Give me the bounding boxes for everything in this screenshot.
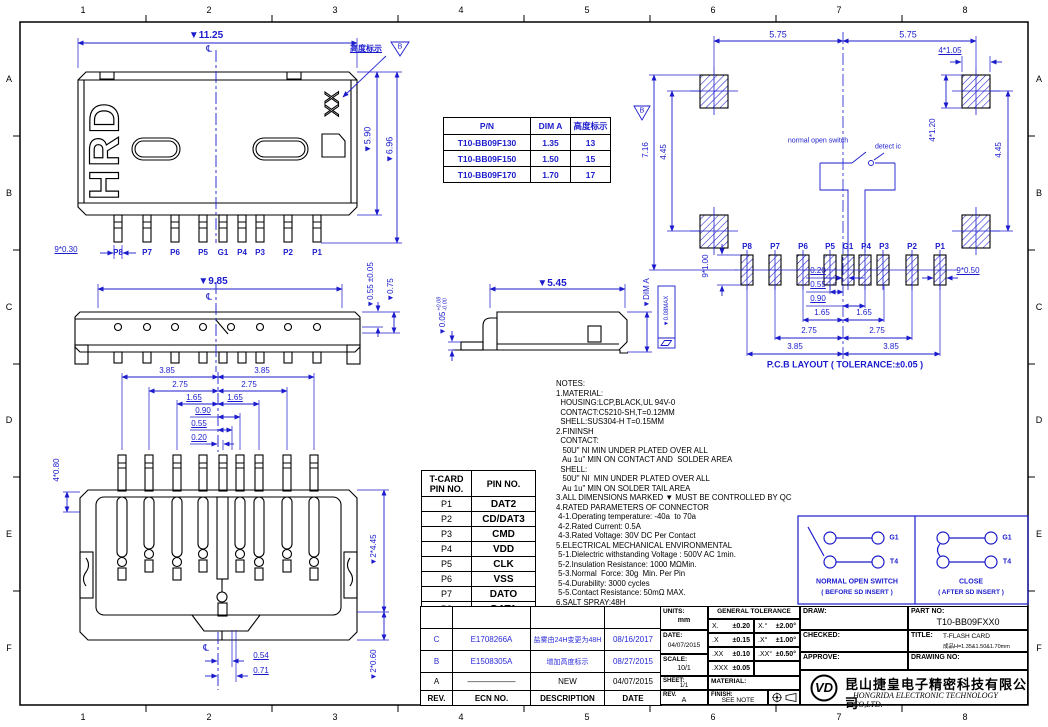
units-cell: UNITS: mm — [660, 606, 708, 630]
tol-linear-row: X.±0.20 — [708, 619, 754, 633]
height-callout-label: 高度标示 — [350, 45, 382, 53]
tol-linear-row: .XX±0.10 — [708, 647, 754, 661]
notes-block: NOTES:1.MATERIAL: HOUSING:LCP,BLACK,UL 9… — [556, 379, 791, 607]
dim-stack: 2.75 — [801, 327, 817, 335]
note-line: 4-3.Rated Voltage: 30V DC Per Contact — [556, 531, 791, 541]
pn-cell: T10-BB09F130 — [444, 135, 531, 151]
pin-label: P3 — [255, 249, 265, 257]
zone-label: 8 — [902, 0, 1028, 20]
pad-label: P4 — [861, 243, 871, 251]
height-stamp-mark: XX — [323, 91, 344, 117]
terminal-label: T4 — [890, 559, 898, 566]
centerline-symbol: ℄ — [203, 644, 209, 653]
tol-linear-row: .XXX±0.05 — [708, 661, 754, 676]
pin-number-cell: P6 — [422, 572, 472, 587]
pin-number-cell: P1 — [422, 497, 472, 512]
finish-value: SEE NOTE — [709, 697, 767, 704]
title-cell: TITLE: T-FLASH CARD 成品H=1.35&1.50&1.70mm — [908, 630, 1028, 652]
dim-contact-height: ▼0.55 ±0.05 — [367, 262, 375, 308]
detect-switch-schematic — [820, 152, 895, 252]
tol-angular-row: .XX°±0.50° — [754, 647, 800, 661]
dim-stack: 0.90 — [195, 407, 211, 415]
pad-label: P5 — [825, 243, 835, 251]
rev-date: 08/16/2017 — [605, 629, 662, 651]
part-no-cell: PART NO: T10-BB09FXX0 — [908, 606, 1028, 630]
material-cell: MATERIAL: — [708, 676, 800, 690]
terminal-label: G1 — [889, 535, 898, 542]
projection-symbols-cell — [768, 690, 800, 705]
tol-key: .XX° — [758, 651, 772, 658]
dim-stack: 1.65 — [856, 309, 872, 317]
pcb-caption: P.C.B LAYOUT ( TOLERANCE:±0.05 ) — [767, 361, 923, 370]
switch-label: normal open switch — [788, 138, 848, 145]
dim-top-width: ▼9.85 — [198, 277, 227, 287]
zone-label: 7 — [776, 0, 902, 20]
note-line: 4-1.Operating temperature: -40a to 70a — [556, 512, 791, 522]
finish-cell: FINISH: SEE NOTE — [708, 690, 768, 705]
dim-stack: 2.75 — [172, 381, 188, 389]
note-line: 5-3.Normal Force: 30g Min. Per Pin — [556, 569, 791, 579]
top-view-contacts — [115, 320, 321, 334]
dim-tail: ▼2*0.60 — [370, 649, 378, 680]
dim-stack: 0.20 — [810, 267, 826, 275]
side-view-outline — [452, 312, 628, 353]
scale-cell: SCALE: 10/1 — [660, 654, 708, 676]
material-label: MATERIAL: — [711, 678, 746, 685]
dim-front-width: ▼11.25 — [189, 31, 223, 41]
pin-number-cell: P2 — [422, 512, 472, 527]
tolerance-header: GENERAL TOLERANCE — [708, 606, 800, 619]
zone-label: B — [0, 136, 18, 250]
zone-label: 4 — [398, 0, 524, 20]
zone-rows-left: ABCDEF — [0, 22, 18, 705]
pin-label: P2 — [283, 249, 293, 257]
note-line: HOUSING:LCP,BLACK,UL 94V-0 — [556, 398, 791, 408]
company-logo-text: VD — [815, 680, 834, 695]
dim-stack: 3.85 — [254, 367, 270, 375]
pn-cell: T10-BB09F150 — [444, 151, 531, 167]
pin-table-header-1: T-CARDPIN NO. — [422, 471, 472, 497]
title-label: TITLE: — [911, 632, 933, 639]
rev-ecn: E1708266A — [453, 629, 531, 651]
pin-number-cell: P5 — [422, 557, 472, 572]
pin-number-cell: P7 — [422, 587, 472, 602]
dim-pcb-right: 5.75 — [899, 31, 917, 40]
pin-label: P6 — [170, 249, 180, 257]
rev-header: DATE — [605, 691, 662, 706]
part-no-value: T10-BB09FXX0 — [909, 617, 1027, 627]
dim-stack: 3.85 — [787, 343, 803, 351]
dim-body-height: ▼2*4.45 — [370, 534, 378, 565]
switch-close-subtitle: ( AFTER SD INSERT ) — [938, 590, 1004, 597]
pad-label: P7 — [770, 243, 780, 251]
rev-desc: NEW — [531, 673, 605, 691]
bottom-view-dimensions — [63, 372, 389, 690]
dim-side-width: ▼5.45 — [537, 279, 566, 289]
zone-label: B — [1030, 136, 1048, 250]
pin-label: P7 — [142, 249, 152, 257]
company-cell: VD 昆山捷皇电子精密科技有限公司 HONGRIDA ELECTRONIC TE… — [800, 670, 1028, 705]
drawing-no-cell: DRAWING NO: — [908, 652, 1028, 670]
note-line: NOTES: — [556, 379, 791, 389]
pin-table-header-line2: PIN NO. — [422, 484, 471, 494]
dim-stack: 0.20 — [191, 434, 207, 442]
drawing-no-label: DRAWING NO: — [911, 654, 960, 661]
switch-open-title: NORMAL OPEN SWITCH — [816, 579, 898, 586]
rev-desc: 盐雾由24H变更为48H — [531, 629, 605, 651]
pad-label: P8 — [742, 243, 752, 251]
pn-cell: T10-BB09F170 — [444, 167, 531, 183]
part-no-label: PART NO: — [911, 608, 944, 615]
zone-label: 6 — [650, 0, 776, 20]
note-line: 50U" NI MIN UNDER PLATED OVER ALL — [556, 474, 791, 484]
note-line: Au 1u" MIN ON SOLDER TAIL AREA — [556, 484, 791, 494]
pin-label: G1 — [218, 249, 229, 257]
date-cell: DATE: 04/07/2015 — [660, 630, 708, 654]
zone-label: E — [1030, 477, 1048, 591]
dim-side-left: 4.45 — [660, 144, 668, 160]
dim-stack: 3.85 — [883, 343, 899, 351]
pin-signal-cell: CLK — [472, 557, 536, 572]
pin-signal-cell: DAT2 — [472, 497, 536, 512]
note-line: CONTACT: — [556, 436, 791, 446]
shell-brand-mark: HRD — [81, 100, 128, 200]
pin-label: P8 — [113, 249, 123, 257]
note-line: 4-2.Rated Current: 0.5A — [556, 522, 791, 532]
zone-label: A — [1030, 22, 1048, 136]
scale-value: 10/1 — [661, 665, 707, 672]
rev-letter: C — [421, 629, 453, 651]
height-cell: 17 — [571, 167, 611, 183]
tol-value: ±1.00° — [776, 637, 796, 644]
date-value: 04/07/2015 — [661, 642, 707, 649]
dim-pin-pad-height: 9*1.00 — [702, 254, 710, 277]
zone-label: A — [0, 22, 18, 136]
pin-signal-cell: CMD — [472, 527, 536, 542]
zone-label: 5 — [524, 0, 650, 20]
rev-value: A — [661, 697, 707, 704]
tol-key: .X° — [758, 637, 767, 644]
pad-label: P2 — [907, 243, 917, 251]
dim-shell-step: ▼0.75 — [387, 278, 395, 302]
zone-label: 6 — [650, 707, 776, 727]
dim-pad-height: 4*1.20 — [929, 118, 937, 141]
zone-label: E — [0, 477, 18, 591]
pin-number-cell: P4 — [422, 542, 472, 557]
centerline-symbol: ℄ — [206, 45, 212, 54]
zone-label: F — [0, 591, 18, 705]
centerline-symbol: ℄ — [206, 293, 212, 302]
pad-label: P3 — [879, 243, 889, 251]
tolerance-lower: -0.00 — [443, 297, 449, 311]
bottom-view-pins — [118, 455, 318, 491]
rev-ecn: —————— — [453, 673, 531, 691]
dima-cell: 1.50 — [531, 151, 571, 167]
drawing-sheet: HRD XX — [0, 0, 1048, 727]
tol-linear-row: .X±0.15 — [708, 633, 754, 647]
zone-label: 2 — [146, 0, 272, 20]
tol-key: X. — [712, 623, 719, 630]
terminal-label: G1 — [1002, 535, 1011, 542]
note-line: 5-2.Insulation Resistance: 1000 MΩMin. — [556, 560, 791, 570]
tol-angular-empty — [754, 661, 800, 676]
dim-center-2: 0.71 — [253, 667, 269, 675]
rev-header: DESCRIPTION — [531, 691, 605, 706]
flatness-value: ▼0.08MAX — [664, 296, 670, 327]
note-line: 5.ELECTRICAL MECHANICAL ENVIRONMENTAL — [556, 541, 791, 551]
tol-key: .X — [712, 637, 719, 644]
tol-value: ±0.05 — [733, 665, 750, 672]
rev-cell: REV. A — [660, 690, 708, 705]
company-logo-icon: VD — [809, 673, 839, 703]
pcb-centerlines — [690, 32, 1000, 362]
tol-value: ±0.50° — [776, 651, 796, 658]
tol-angular-row: X.°±2.00° — [754, 619, 800, 633]
pin-signal-cell: CD/DAT3 — [472, 512, 536, 527]
dim-latch: 4*0.80 — [53, 458, 61, 481]
height-cell: 13 — [571, 135, 611, 151]
dim-shell-height: ▼5.90 — [364, 127, 373, 153]
tol-key: .XX — [712, 651, 723, 658]
switch-close-title: CLOSE — [959, 579, 983, 586]
note-line: 1.MATERIAL: — [556, 389, 791, 399]
tol-value: ±0.20 — [733, 623, 750, 630]
draw-label: DRAW: — [803, 608, 827, 615]
pin-label: P5 — [198, 249, 208, 257]
dim-pcb-left: 5.75 — [769, 31, 787, 40]
pin-table-header-line1: T-CARD — [422, 474, 471, 484]
dim-stack: 1.65 — [814, 309, 830, 317]
revision-table: C E1708266A 盐雾由24H变更为48H 08/16/2017 B E1… — [420, 606, 662, 706]
dim-stack: 3.85 — [159, 367, 175, 375]
note-line: 50U" NI MIN UNDER PLATED OVER ALL — [556, 446, 791, 456]
tol-value: ±2.00° — [776, 623, 796, 630]
pin-label: P1 — [312, 249, 322, 257]
pcb-layout — [649, 32, 1013, 362]
note-line: 5-5.Contact Resistance: 50mΩ MAX. — [556, 588, 791, 598]
checked-cell: CHECKED: — [800, 630, 908, 652]
zone-label: 1 — [20, 0, 146, 20]
zone-label: F — [1030, 591, 1048, 705]
rev-header: REV. — [421, 691, 453, 706]
draw-cell: DRAW: — [800, 606, 908, 630]
pin-signal-cell: VDD — [472, 542, 536, 557]
note-line: 5-1.Dielectric withstanding Voltage : 50… — [556, 550, 791, 560]
dim-stack: 0.55 — [810, 281, 826, 289]
pn-table-header: 高度标示 — [571, 118, 611, 135]
dim-stack: 1.65 — [227, 394, 243, 402]
units-value: mm — [661, 617, 707, 624]
pin-label: P4 — [237, 249, 247, 257]
zone-label: 3 — [272, 0, 398, 20]
detect-ic-label: detect ic — [875, 144, 901, 151]
note-line: Au 1u" MIN ON CONTACT AND SOLDER AREA — [556, 455, 791, 465]
tol-value: ±0.10 — [733, 651, 750, 658]
zone-label: C — [1030, 250, 1048, 364]
tolerance-title: GENERAL TOLERANCE — [709, 608, 799, 615]
date-label: DATE: — [663, 632, 682, 639]
rev-desc: 增加高度标示 — [531, 651, 605, 673]
note-line: SHELL: — [556, 465, 791, 475]
dim-pin-width: 9*0.30 — [54, 246, 77, 254]
dim-pin-pad-width: 9*0.50 — [956, 267, 979, 275]
zone-label: 5 — [524, 707, 650, 727]
dim-center-1: 0.54 — [253, 652, 269, 660]
pin-signal-cell: DATO — [472, 587, 536, 602]
zone-label: D — [1030, 363, 1048, 477]
dima-cell: 1.35 — [531, 135, 571, 151]
dim-standoff-value: ▼0.05 — [438, 312, 447, 336]
pin-table-header-2: PIN NO. — [472, 471, 536, 497]
dim-stack: 0.55 — [191, 420, 207, 428]
dim-pcb-height: 7.16 — [642, 142, 650, 158]
pn-table-flag: B — [640, 108, 645, 115]
rev-letter: A — [421, 673, 453, 691]
rev-ecn: E1508305A — [453, 651, 531, 673]
rev-letter: B — [421, 651, 453, 673]
title-value-2: 成品H=1.35&1.50&1.70mm — [943, 642, 1010, 650]
height-cell: 15 — [571, 151, 611, 167]
note-line: 4.RATED PARAMETERS OF CONNECTOR — [556, 503, 791, 513]
bottom-view-outline — [80, 455, 357, 640]
top-view-outline — [75, 312, 360, 364]
sheet-cell: SHEET: 1/1 — [660, 676, 708, 690]
note-line: 3.ALL DIMENSIONS MARKED ▼ MUST BE CONTRO… — [556, 493, 791, 503]
pn-table-header: DIM A — [531, 118, 571, 135]
zone-label: 1 — [20, 707, 146, 727]
zone-label: 2 — [146, 707, 272, 727]
rev-header: ECN NO. — [453, 691, 531, 706]
approve-cell: APPROVE: — [800, 652, 908, 670]
pn-table: P/N DIM A 高度标示 T10-BB09F130 1.35 13 T10-… — [443, 117, 611, 183]
sheet-value: 1/1 — [661, 683, 707, 689]
note-line: CONTACT:C5210-SH,T=0.12MM — [556, 408, 791, 418]
zone-label: 4 — [398, 707, 524, 727]
pad-label: G1 — [843, 243, 854, 251]
company-name-en: HONGRIDA ELECTRONIC TECHNOLOGY CO,LTD. — [853, 691, 1027, 709]
dim-standoff: ▼0.05+0.08-0.00 — [438, 297, 449, 335]
dima-cell: 1.70 — [531, 167, 571, 183]
dim-stack: 2.75 — [869, 327, 885, 335]
zone-label: 3 — [272, 707, 398, 727]
pin-signal-cell: VSS — [472, 572, 536, 587]
projection-symbols-icon — [769, 691, 799, 704]
tol-angular-row: .X°±1.00° — [754, 633, 800, 647]
dim-stack: 2.75 — [241, 381, 257, 389]
dim-side-right: 4.45 — [995, 142, 1003, 158]
pad-label: P1 — [935, 243, 945, 251]
note-line: 5-4.Durability: 3000 cycles — [556, 579, 791, 589]
pcb-pads — [700, 75, 990, 285]
dim-stack: 0.90 — [810, 295, 826, 303]
approve-label: APPROVE: — [803, 654, 840, 661]
dim-total-height: ▼6.96 — [386, 137, 395, 163]
tol-key: .XXX — [712, 665, 728, 672]
rev-date: 08/27/2015 — [605, 651, 662, 673]
zone-label: C — [0, 250, 18, 364]
pin-number-cell: P3 — [422, 527, 472, 542]
scale-label: SCALE: — [663, 656, 687, 663]
front-view-pins — [114, 215, 321, 242]
rev-date: 04/07/2015 — [605, 673, 662, 691]
zone-columns-top: 12345678 — [20, 0, 1028, 20]
dim-pad-width: 4*1.05 — [938, 47, 961, 55]
note-line: 2.FININSH — [556, 427, 791, 437]
pn-table-header: P/N — [444, 118, 531, 135]
terminal-label: T4 — [1003, 559, 1011, 566]
switch-open-subtitle: ( BEFORE SD INSERT ) — [821, 590, 893, 597]
tol-key: X.° — [758, 623, 767, 630]
bottom-view-contact-fingers — [117, 497, 319, 616]
zone-rows-right: ABCDEF — [1030, 22, 1048, 705]
note-line: SHELL:SUS304-H T=0.15MM — [556, 417, 791, 427]
zone-label: D — [0, 363, 18, 477]
title-value: T-FLASH CARD — [943, 633, 990, 640]
units-label: UNITS: — [663, 608, 685, 615]
checked-label: CHECKED: — [803, 632, 840, 639]
height-callout-flag: B — [398, 44, 403, 51]
top-view-feet — [114, 352, 321, 363]
dim-a-label: ▼DIM A — [643, 278, 651, 308]
tol-value: ±0.15 — [733, 637, 750, 644]
pad-label: P6 — [798, 243, 808, 251]
dim-stack: 1.65 — [186, 394, 202, 402]
